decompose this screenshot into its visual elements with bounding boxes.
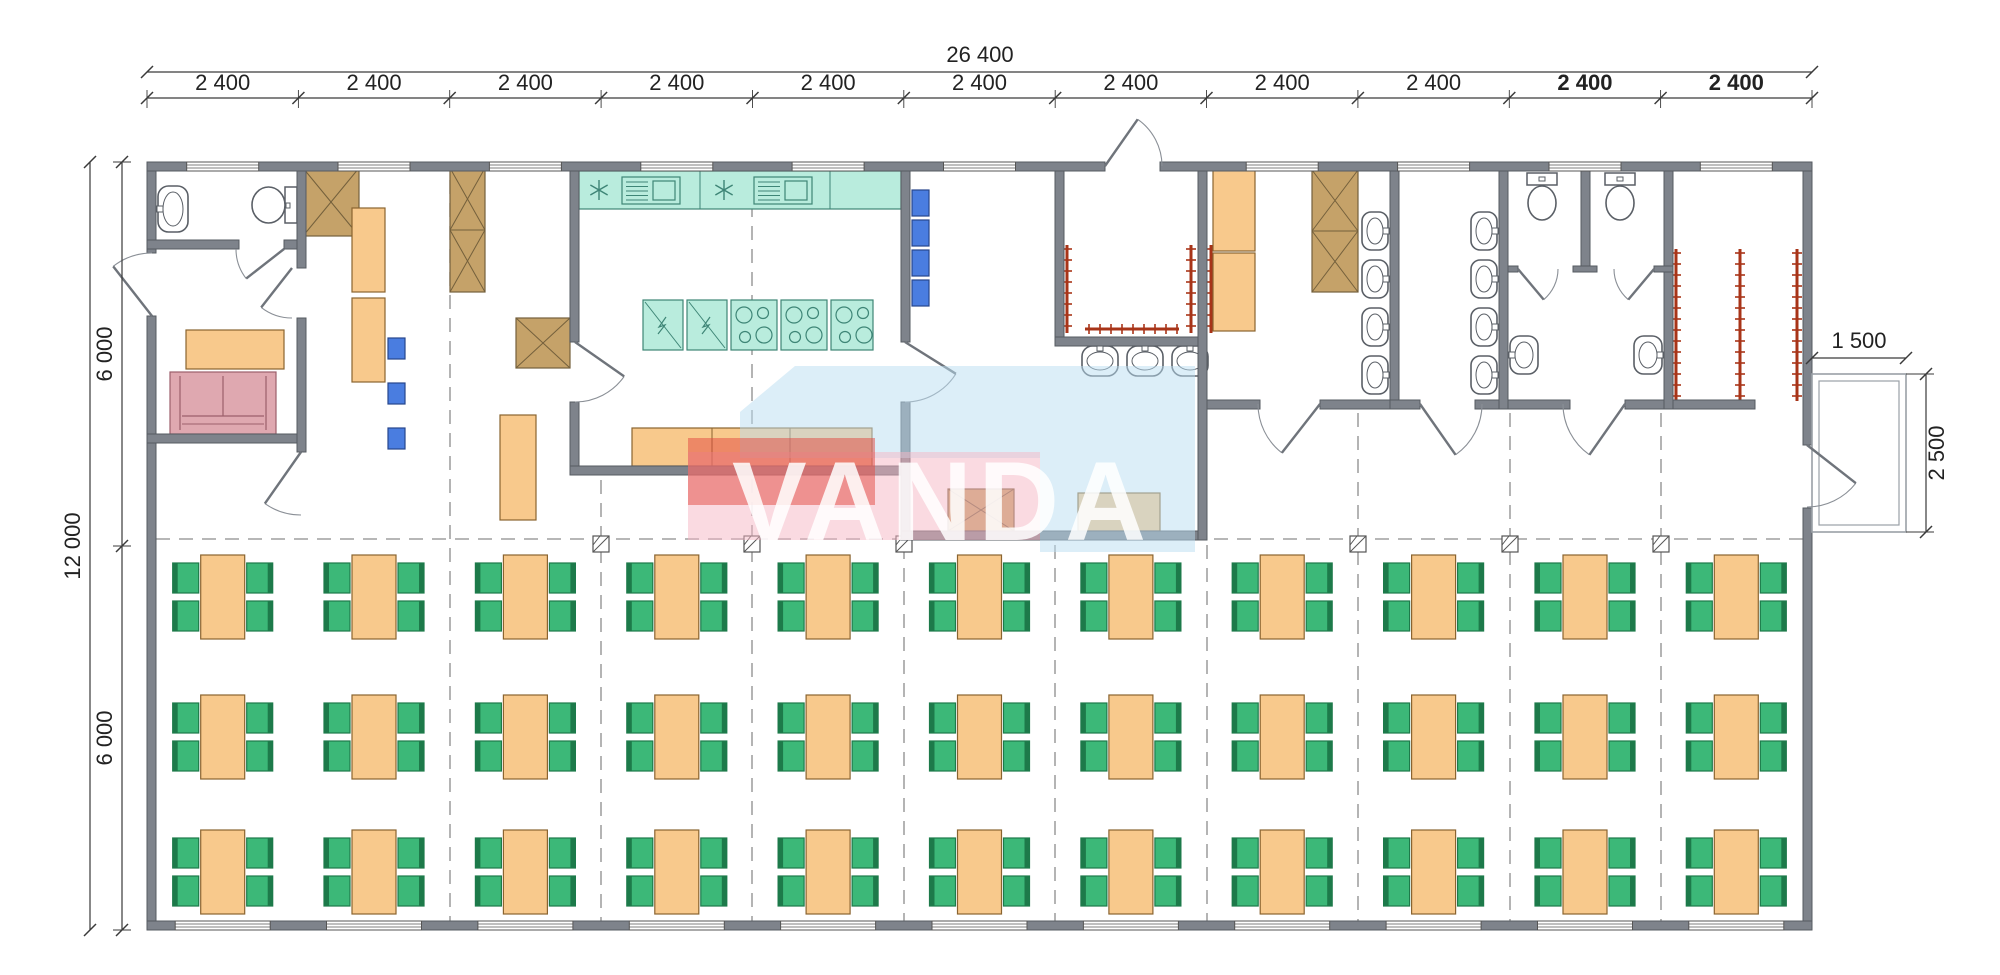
wall-segment <box>147 316 156 921</box>
window-frame <box>1689 921 1784 930</box>
dining-set <box>1384 555 1484 639</box>
fridge <box>687 300 727 350</box>
dining-set <box>1535 830 1635 914</box>
chair <box>388 428 405 449</box>
door <box>1614 269 1654 300</box>
chair-back <box>324 563 329 593</box>
dining-table <box>1412 695 1456 779</box>
chair <box>1384 876 1410 906</box>
chair <box>778 876 804 906</box>
porch-outline-inner <box>1819 381 1899 525</box>
dining-table <box>352 830 396 914</box>
cooktop-body <box>781 300 827 350</box>
chair-back <box>1025 876 1030 906</box>
dining-set <box>627 555 727 639</box>
coat-rack <box>1792 249 1802 401</box>
dining-set <box>1686 555 1786 639</box>
wash-basin <box>1509 336 1538 374</box>
chair-back <box>1479 703 1484 733</box>
chair <box>1155 741 1181 771</box>
window <box>944 162 1016 171</box>
dimension-label: 2 400 <box>1255 70 1310 95</box>
door-swing-arc <box>1544 269 1558 300</box>
toilet-bowl <box>1606 186 1634 220</box>
chair-back <box>778 563 783 593</box>
window <box>932 921 1027 930</box>
shelf-unit <box>912 250 929 276</box>
chair-back <box>1686 838 1691 868</box>
dimension-label: 2 400 <box>1103 70 1158 95</box>
window <box>1689 921 1784 930</box>
wall-segment <box>1664 171 1673 409</box>
chair-back <box>627 703 632 733</box>
wash-basin <box>1471 356 1498 394</box>
window <box>1246 162 1318 171</box>
dining-set <box>1232 830 1332 914</box>
chair-back <box>1479 563 1484 593</box>
dining-set <box>627 695 727 779</box>
dining-set <box>627 830 727 914</box>
dining-set <box>324 555 424 639</box>
chair <box>324 703 350 733</box>
chair <box>1458 601 1484 631</box>
toilet <box>1605 173 1635 220</box>
cooktop <box>781 300 827 350</box>
chair-back <box>1781 601 1786 631</box>
column-marker <box>1502 536 1518 552</box>
chair <box>549 838 575 868</box>
chair-back <box>627 741 632 771</box>
chair-back <box>1384 601 1389 631</box>
window <box>187 162 259 171</box>
chair-back <box>268 703 273 733</box>
cooktop <box>831 300 873 350</box>
wash-basin <box>1634 336 1663 374</box>
chair <box>852 741 878 771</box>
dining-table <box>655 555 699 639</box>
dining-table <box>958 695 1002 779</box>
chair-back <box>873 838 878 868</box>
chair-back <box>419 741 424 771</box>
chair-back <box>173 703 178 733</box>
door-leaf <box>575 342 624 376</box>
dining-set <box>324 695 424 779</box>
chair-back <box>570 876 575 906</box>
toilet-bowl <box>1528 186 1556 220</box>
chair <box>173 876 199 906</box>
window-frame <box>792 162 864 171</box>
cooktop-body <box>731 300 777 350</box>
chair <box>1458 741 1484 771</box>
chair <box>1155 703 1181 733</box>
dining-set <box>778 830 878 914</box>
chair-back <box>627 838 632 868</box>
chair-back <box>873 601 878 631</box>
chair <box>701 838 727 868</box>
chair-back <box>324 601 329 631</box>
window <box>327 921 422 930</box>
chair-back <box>570 703 575 733</box>
chair-back <box>1232 876 1237 906</box>
window-frame <box>1398 162 1470 171</box>
chair <box>627 838 653 868</box>
chair-back <box>1535 601 1540 631</box>
chair <box>1232 876 1258 906</box>
chair <box>388 338 405 359</box>
chair <box>1004 741 1030 771</box>
chair <box>1458 563 1484 593</box>
chair-back <box>930 741 935 771</box>
basin-tap <box>1383 228 1389 234</box>
chair-back <box>1081 703 1086 733</box>
chair <box>1232 563 1258 593</box>
chair-back <box>778 741 783 771</box>
chair-back <box>1781 563 1786 593</box>
dimension-label: 12 000 <box>60 512 85 579</box>
chair-back <box>1176 563 1181 593</box>
chair <box>398 703 424 733</box>
window <box>781 921 876 930</box>
chair <box>930 741 956 771</box>
dining-table <box>201 830 245 914</box>
window-frame <box>187 162 259 171</box>
door-leaf <box>261 268 292 307</box>
chair <box>1458 876 1484 906</box>
chair <box>475 563 501 593</box>
chair-back <box>1781 703 1786 733</box>
chair-back <box>475 838 480 868</box>
chair <box>1081 703 1107 733</box>
chair-back <box>778 703 783 733</box>
chair <box>324 601 350 631</box>
door-swing-arc <box>1563 404 1589 455</box>
chair <box>1609 876 1635 906</box>
dining-set <box>1232 555 1332 639</box>
chair <box>627 563 653 593</box>
basin-tap <box>1492 276 1498 282</box>
chair-back <box>570 563 575 593</box>
chair-back <box>324 741 329 771</box>
chair <box>1609 838 1635 868</box>
chair-back <box>1384 838 1389 868</box>
chair-back <box>1535 876 1540 906</box>
chair-back <box>1176 876 1181 906</box>
left-dimension-total: 12 000 <box>60 156 96 936</box>
chair <box>627 601 653 631</box>
chair-back <box>627 601 632 631</box>
wall-segment <box>1390 400 1420 409</box>
chair <box>627 876 653 906</box>
basin-tap <box>1657 352 1663 358</box>
dining-table <box>352 555 396 639</box>
door <box>1807 445 1856 507</box>
chair-back <box>419 601 424 631</box>
dining-set <box>1535 555 1635 639</box>
chair <box>398 563 424 593</box>
dining-table <box>1714 555 1758 639</box>
chair <box>1686 601 1712 631</box>
chair <box>930 703 956 733</box>
fridge <box>643 300 683 350</box>
chair <box>1609 703 1635 733</box>
door-leaf <box>1807 445 1856 483</box>
chair <box>1760 703 1786 733</box>
wash-basin <box>1471 212 1498 250</box>
dining-set <box>1535 695 1635 779</box>
chair <box>852 838 878 868</box>
dimension-label: 2 400 <box>1557 70 1612 95</box>
chair <box>1535 601 1561 631</box>
chair-back <box>268 563 273 593</box>
chair-back <box>173 876 178 906</box>
coat-rack <box>1735 249 1745 401</box>
dimension-label: 2 400 <box>498 70 553 95</box>
chair <box>1081 601 1107 631</box>
dining-table <box>503 555 547 639</box>
chair <box>852 876 878 906</box>
chair-back <box>1630 876 1635 906</box>
chair-back <box>627 563 632 593</box>
window <box>1083 921 1178 930</box>
dining-table <box>958 830 1002 914</box>
window <box>1549 162 1621 171</box>
chair-back <box>1686 741 1691 771</box>
window-frame <box>944 162 1016 171</box>
chair <box>475 741 501 771</box>
chair-back <box>1176 741 1181 771</box>
desk <box>352 298 385 382</box>
kitchen-counter <box>579 171 901 209</box>
dining-table <box>655 830 699 914</box>
basin-tap <box>1492 228 1498 234</box>
chair-back <box>475 741 480 771</box>
window-frame <box>1549 162 1621 171</box>
window-frame <box>175 921 270 930</box>
chair-back <box>324 838 329 868</box>
chair <box>247 876 273 906</box>
chair <box>475 601 501 631</box>
chair-back <box>722 741 727 771</box>
wall-segment <box>1508 266 1518 272</box>
dining-table <box>806 695 850 779</box>
dining-set <box>1384 695 1484 779</box>
chair <box>398 838 424 868</box>
window <box>338 162 410 171</box>
watermark-text: VANDA <box>732 439 1152 564</box>
chair-back <box>570 838 575 868</box>
door-leaf <box>1628 269 1654 300</box>
chair <box>627 703 653 733</box>
chair <box>1081 876 1107 906</box>
door-swing-arc <box>261 307 292 318</box>
chair-back <box>873 741 878 771</box>
door <box>265 452 301 515</box>
chair-back <box>873 563 878 593</box>
chair-back <box>722 601 727 631</box>
shelf-unit <box>912 220 929 246</box>
locker-cabinet <box>1213 170 1255 251</box>
chair-back <box>722 838 727 868</box>
wall-segment <box>1390 171 1399 409</box>
toilet-bowl <box>252 187 285 223</box>
door-swing-arc <box>1807 483 1856 507</box>
chair-back <box>1025 601 1030 631</box>
chair <box>852 703 878 733</box>
chair-back <box>1630 703 1635 733</box>
dining-table <box>655 695 699 779</box>
chair-back <box>475 703 480 733</box>
chair-back <box>930 601 935 631</box>
chair-back <box>268 838 273 868</box>
dining-set <box>778 555 878 639</box>
chair <box>1232 838 1258 868</box>
chair <box>1609 741 1635 771</box>
chair-back <box>1781 876 1786 906</box>
dining-table <box>503 695 547 779</box>
door-swing-arc <box>113 253 152 266</box>
chair-back <box>1327 563 1332 593</box>
chair <box>930 563 956 593</box>
chair <box>1384 703 1410 733</box>
door-leaf <box>1105 119 1138 166</box>
chair-back <box>173 838 178 868</box>
chair-back <box>1176 601 1181 631</box>
chair-back <box>1630 838 1635 868</box>
chair-back <box>1384 741 1389 771</box>
chair <box>1081 563 1107 593</box>
porch-outline <box>1812 374 1906 532</box>
chair <box>1535 563 1561 593</box>
dining-set <box>173 695 273 779</box>
door-swing-arc <box>575 376 624 402</box>
chair <box>549 876 575 906</box>
chair <box>852 601 878 631</box>
toilet <box>1527 173 1557 220</box>
desk <box>500 415 536 520</box>
dining-set <box>173 555 273 639</box>
window <box>1386 921 1481 930</box>
dining-set <box>1081 555 1181 639</box>
wardrobe-double <box>1312 170 1358 292</box>
dining-set <box>1686 695 1786 779</box>
chair-back <box>570 741 575 771</box>
floor-plan-drawing: 26 4002 4002 4002 4002 4002 4002 4002 40… <box>0 0 2000 975</box>
toilet-tank <box>1605 173 1635 185</box>
door-swing-arc <box>236 249 246 279</box>
chair <box>852 563 878 593</box>
basin-tap <box>1492 324 1498 330</box>
chair <box>324 563 350 593</box>
chair <box>324 838 350 868</box>
chair-back <box>1025 563 1030 593</box>
chair-back <box>1535 563 1540 593</box>
desk <box>352 208 385 292</box>
chair-back <box>1081 563 1086 593</box>
wardrobe-double <box>450 168 485 292</box>
window-frame <box>1235 921 1330 930</box>
dining-table <box>1714 695 1758 779</box>
door-swing-arc <box>265 504 301 515</box>
toilet <box>252 187 297 223</box>
floor-plan-page: 26 4002 4002 4002 4002 4002 4002 4002 40… <box>0 0 2000 975</box>
window <box>641 162 713 171</box>
basin-tap <box>1492 372 1498 378</box>
column-marker <box>1350 536 1366 552</box>
chair <box>1760 876 1786 906</box>
dining-table <box>1412 555 1456 639</box>
chair-back <box>1686 563 1691 593</box>
chair <box>1155 601 1181 631</box>
wall-segment <box>297 318 306 452</box>
wash-basin <box>1471 260 1498 298</box>
chair-back <box>1025 741 1030 771</box>
chair <box>1306 838 1332 868</box>
chair <box>173 838 199 868</box>
wall-segment <box>1803 508 1812 921</box>
dimension-label: 2 400 <box>347 70 402 95</box>
dimension-label: 2 400 <box>1406 70 1461 95</box>
chair-back <box>570 601 575 631</box>
dining-set <box>475 555 575 639</box>
chair-back <box>268 876 273 906</box>
door <box>1105 119 1162 166</box>
wall-segment <box>1207 400 1260 409</box>
chair <box>1004 876 1030 906</box>
dining-table <box>1714 830 1758 914</box>
chair <box>398 741 424 771</box>
chair-back <box>1232 741 1237 771</box>
dimension-label: 2 400 <box>801 70 856 95</box>
window <box>629 921 724 930</box>
chair <box>1306 703 1332 733</box>
chair-back <box>1025 838 1030 868</box>
chair-back <box>930 563 935 593</box>
chair-back <box>268 601 273 631</box>
window-frame <box>1083 921 1178 930</box>
dining-set <box>1686 830 1786 914</box>
chair-back <box>1327 876 1332 906</box>
window <box>478 921 573 930</box>
window <box>175 921 270 930</box>
basin-tap <box>1383 372 1389 378</box>
window-frame <box>1246 162 1318 171</box>
chair <box>549 601 575 631</box>
window-frame <box>932 921 1027 930</box>
chair-back <box>324 703 329 733</box>
chair-back <box>1535 838 1540 868</box>
chair-back <box>419 563 424 593</box>
dining-table <box>1563 830 1607 914</box>
dimension-label: 6 000 <box>92 326 117 381</box>
chair-back <box>324 876 329 906</box>
chair-back <box>1384 703 1389 733</box>
window-frame <box>1386 921 1481 930</box>
dining-table <box>1563 555 1607 639</box>
chair-back <box>1630 741 1635 771</box>
sofa <box>170 372 276 434</box>
chair <box>1686 741 1712 771</box>
chair-back <box>1479 741 1484 771</box>
chair <box>1306 563 1332 593</box>
chair-back <box>1630 601 1635 631</box>
chair <box>930 601 956 631</box>
chair <box>173 563 199 593</box>
chair <box>475 876 501 906</box>
dining-table <box>1260 695 1304 779</box>
dining-table <box>201 555 245 639</box>
chair <box>1458 838 1484 868</box>
wall-segment <box>570 402 579 475</box>
